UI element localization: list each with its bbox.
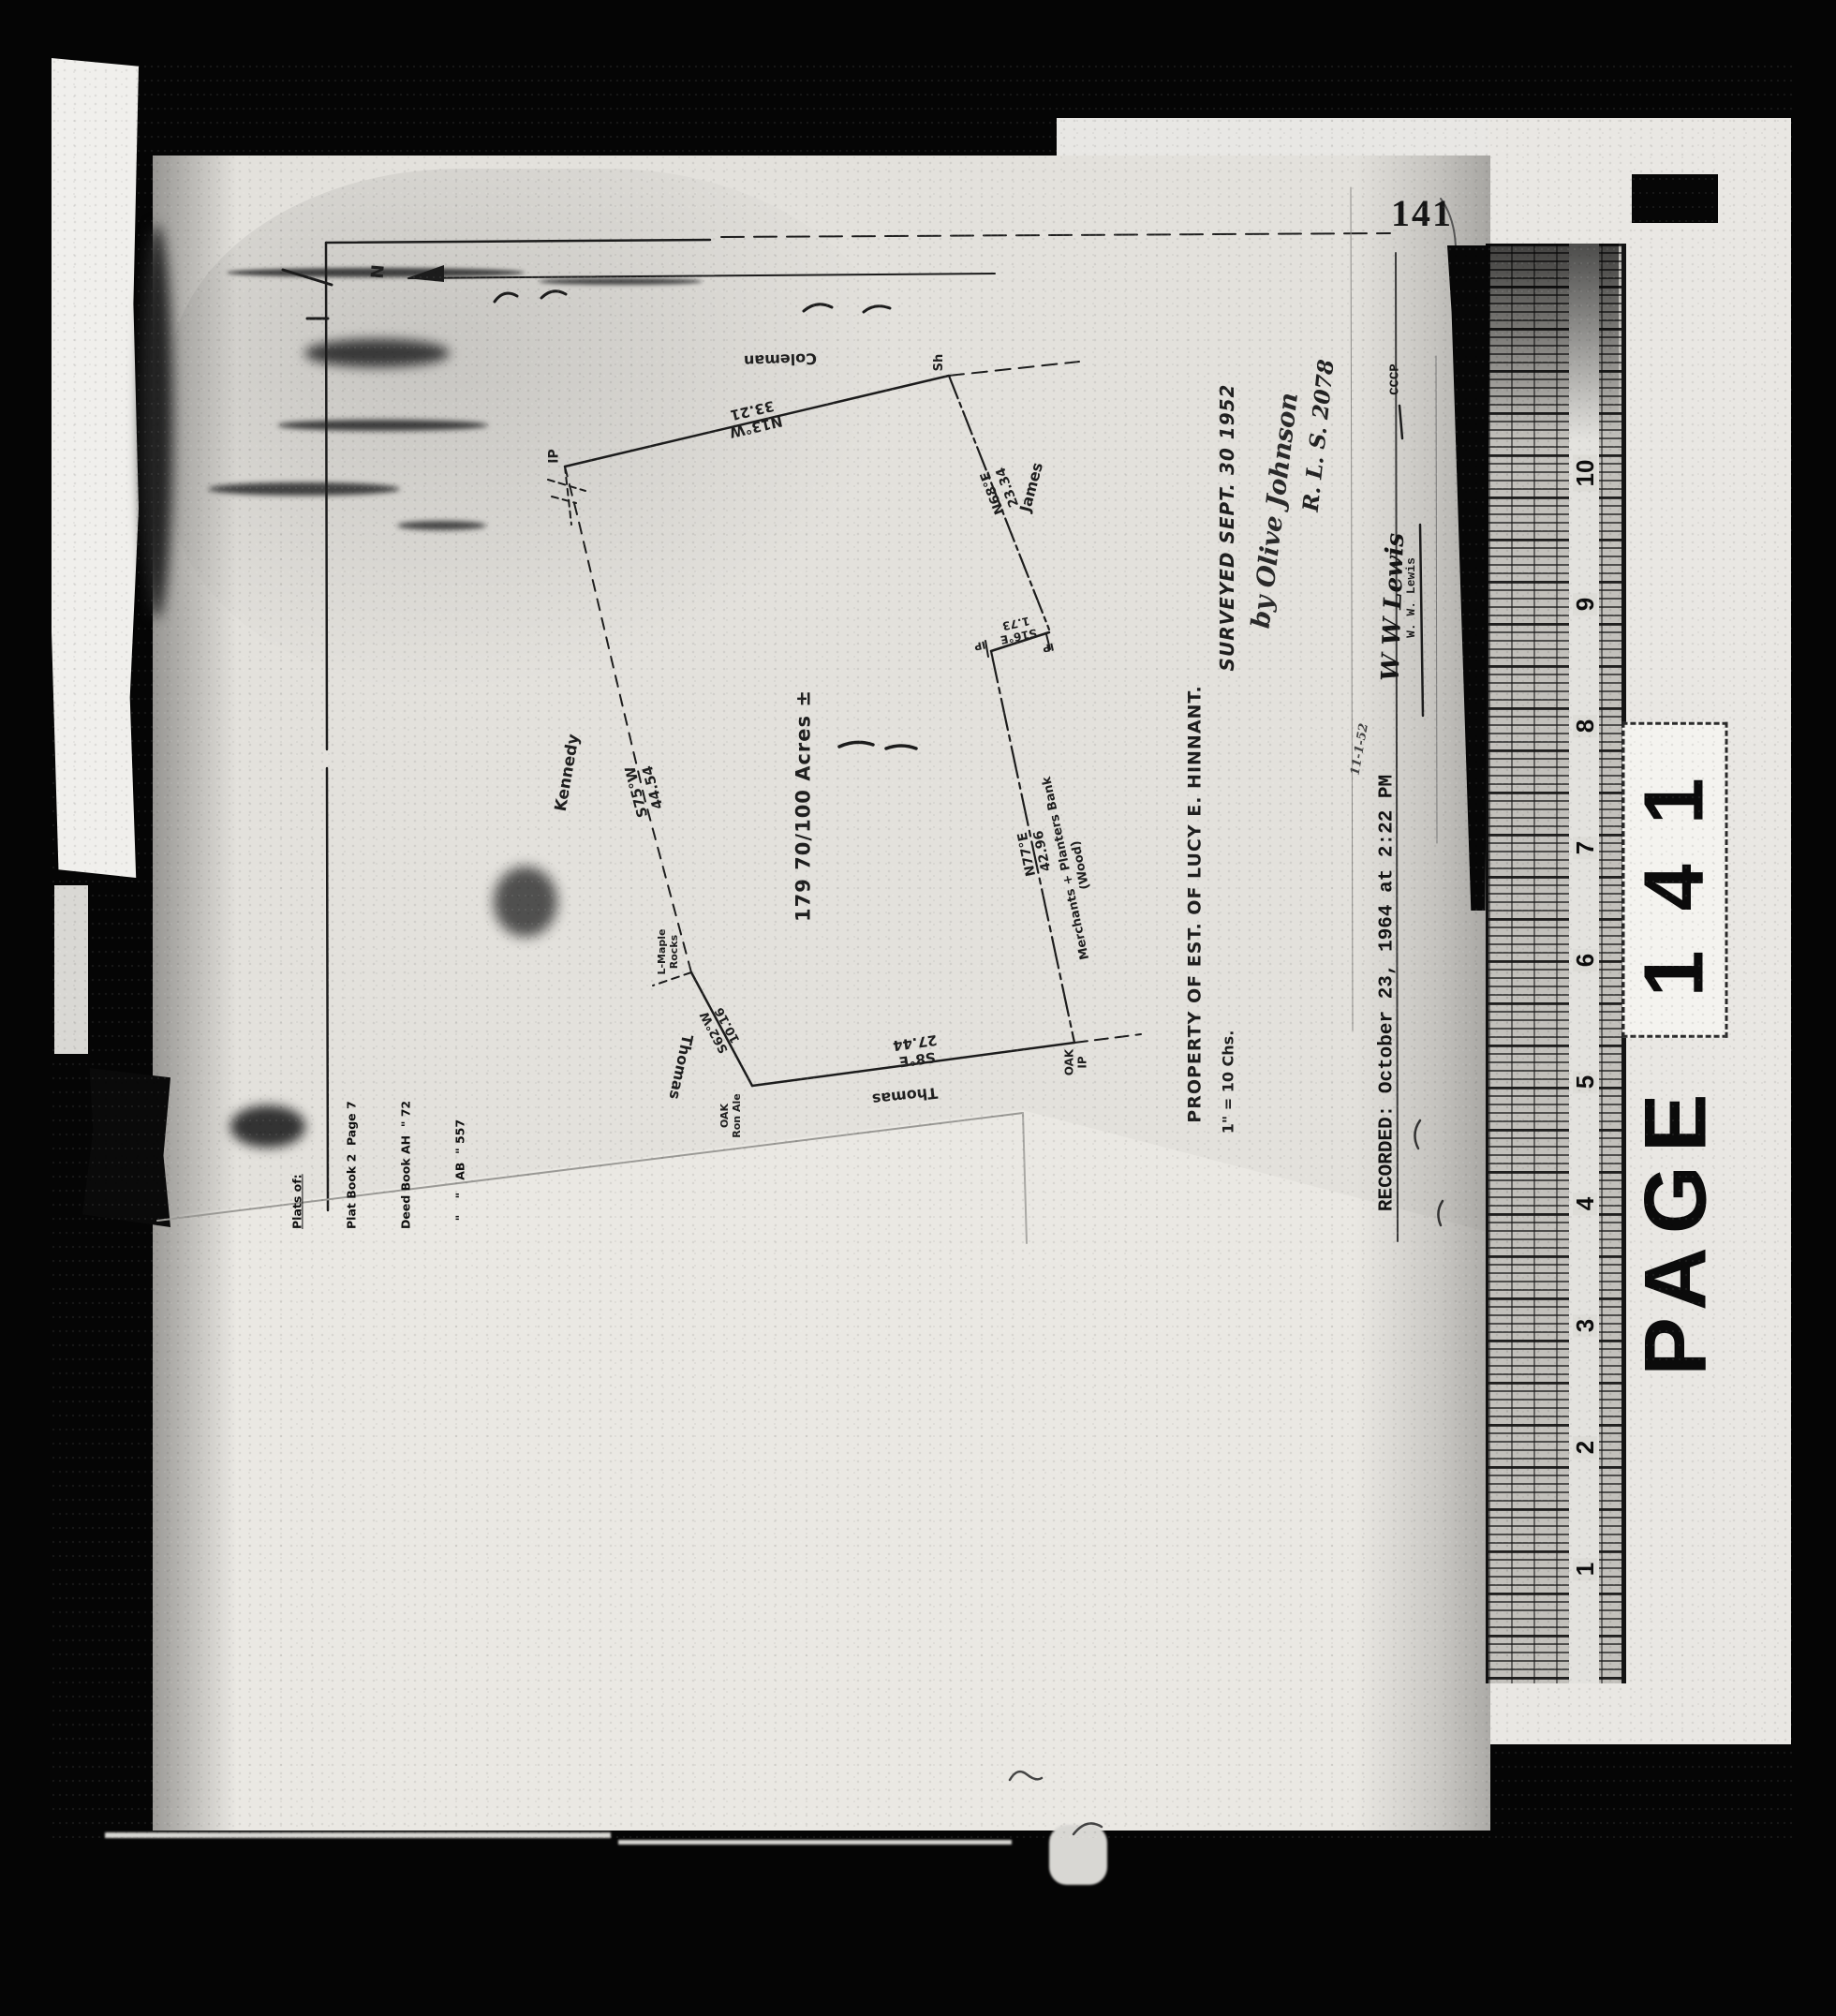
page-stamp-word: PAGE xyxy=(1624,1080,1725,1375)
corner-ne-sh: Sh xyxy=(932,354,947,372)
ruler-number: 1 xyxy=(1573,1558,1597,1580)
reference-heading: Plats of: xyxy=(288,1070,305,1229)
ruler-number: 10 xyxy=(1573,455,1597,492)
ruler-number: 3 xyxy=(1573,1314,1597,1337)
ruler-number: 9 xyxy=(1573,593,1597,615)
property-title: PROPERTY OF EST. OF LUCY E. HINNANT. xyxy=(1185,685,1207,1122)
corner-se-oak-ip: OAK IP xyxy=(1063,1049,1090,1075)
page-stamp: PAGE 141 xyxy=(1622,722,1728,1376)
page-stamp-number: 141 xyxy=(1622,722,1728,1037)
corner-jog-right-ip: IP xyxy=(1042,640,1056,654)
clerk-mark: CCCP xyxy=(1388,363,1404,395)
bearing-south-edge: S8°E 27.44 xyxy=(892,1031,940,1071)
ruler-number: 2 xyxy=(1573,1436,1597,1459)
scale-note: 1" = 10 Chs. xyxy=(1219,1030,1236,1134)
north-label: N xyxy=(368,264,390,280)
ruler-number: 5 xyxy=(1573,1071,1597,1093)
ruler-number: 7 xyxy=(1573,837,1597,859)
printed-page-number: 141 xyxy=(1391,191,1453,236)
surveyed-date: SURVEYED SEPT. 30 1952 xyxy=(1216,384,1238,672)
corner-jog-left-ip: IP xyxy=(973,638,987,652)
reference-block: Plats of: Plat Book 2 Page 7 Deed Book A… xyxy=(251,1070,505,1229)
neighbor-coleman: Coleman xyxy=(744,349,818,370)
ruler-shadow-cap xyxy=(1486,244,1619,440)
ruler-number: 8 xyxy=(1573,715,1597,737)
reference-line: Deed Book AH " 72 xyxy=(396,1070,414,1229)
scan-canvas: 141 N 179 70/100 Acres ± Coleman James K… xyxy=(0,0,1836,2016)
ruler-number: 4 xyxy=(1573,1193,1597,1215)
recorded-line: RECORDED: October 23, 1964 at 2:22 PM xyxy=(1375,775,1399,1211)
reference-line: " " AB " 557 xyxy=(452,1070,469,1229)
scale-ruler xyxy=(1486,244,1626,1683)
corner-sw-oak: OAK Ron Ale xyxy=(718,1093,743,1137)
area-label: 179 70/100 Acres ± xyxy=(792,689,815,922)
ruler-number: 6 xyxy=(1573,949,1597,971)
corner-nw-ip: IP xyxy=(547,449,563,463)
reference-line: Plat Book 2 Page 7 xyxy=(342,1070,360,1229)
corner-maple-rocks: L-Maple Rocks xyxy=(656,928,680,974)
clerk-typed-name: W. W. Lewis xyxy=(1404,557,1419,638)
